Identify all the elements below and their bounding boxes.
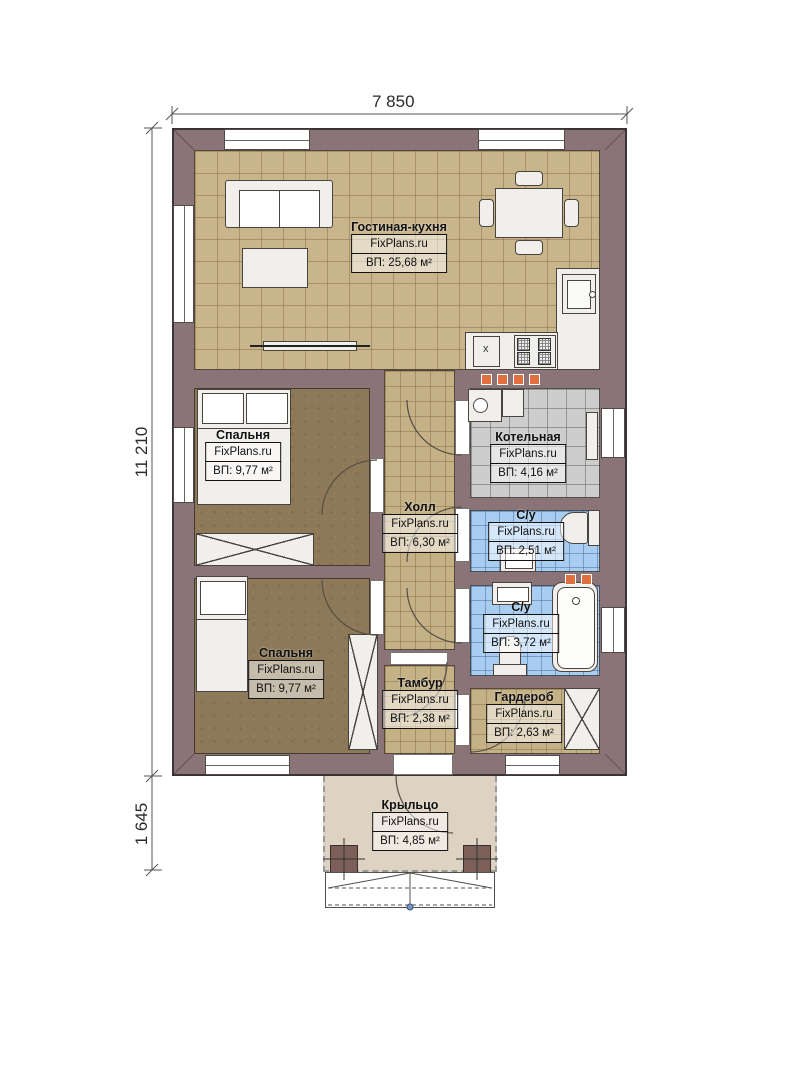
window-top-right — [478, 129, 565, 150]
room-name: Спальня — [205, 428, 281, 443]
room-name: С/у — [483, 600, 559, 615]
boiler-unit — [468, 389, 502, 422]
window-top-left — [224, 129, 310, 150]
room-area: ВП: 2,63 м² — [486, 723, 562, 743]
room-name: Холл — [382, 500, 458, 515]
room-area: ВП: 3,72 м² — [483, 633, 559, 653]
stove-burner-2 — [538, 338, 551, 351]
dining-chair-right — [564, 199, 579, 227]
room-label-bedroom1: Спальня FixPlans.ru ВП: 9,77 м² — [205, 428, 281, 481]
toilet-wc2-tank — [493, 664, 527, 676]
watermark: FixPlans.ru — [483, 614, 559, 634]
dining-chair-bottom — [515, 240, 543, 255]
porch-steps — [325, 872, 495, 908]
vent-kitchen-3 — [513, 374, 524, 385]
room-label-wardrobe: Гардероб FixPlans.ru ВП: 2,63 м² — [486, 690, 562, 743]
vent-kitchen-4 — [529, 374, 540, 385]
bathtub-drain — [572, 597, 580, 605]
vent-wc-2 — [581, 574, 592, 585]
kitchen-sink — [562, 274, 596, 314]
coffee-table — [242, 248, 308, 288]
boiler-counter — [502, 389, 524, 417]
room-area: ВП: 4,16 м² — [490, 463, 566, 483]
porch-column-left — [330, 845, 358, 873]
dimension-porch: 1 645 — [132, 794, 152, 854]
door-opening-bedroom2 — [370, 580, 384, 635]
bathtub — [552, 582, 598, 672]
door-opening-tambur — [390, 652, 448, 665]
room-label-living: Гостиная-кухня FixPlans.ru ВП: 25,68 м² — [351, 220, 447, 273]
room-label-porch: Крыльцо FixPlans.ru ВП: 4,85 м² — [372, 798, 448, 851]
sofa-cushion-right — [279, 190, 320, 228]
kitchen-appliance-label: x — [483, 343, 489, 355]
room-area: ВП: 6,30 м² — [382, 533, 458, 553]
room-name: Котельная — [490, 430, 566, 445]
porch-column-right — [463, 845, 491, 873]
wardrobe-cabinet — [564, 688, 600, 750]
bed2-blanket-line — [197, 619, 249, 620]
kitchen-sink-basin — [567, 280, 591, 309]
entrance-door-opening — [393, 754, 453, 775]
window-right-wc2 — [601, 607, 625, 653]
room-name: Тамбур — [382, 676, 458, 691]
door-opening-wc2 — [455, 588, 470, 643]
room-name: Крыльцо — [372, 798, 448, 813]
vent-wc-1 — [565, 574, 576, 585]
window-left-living — [173, 205, 194, 323]
room-name: Спальня — [248, 646, 324, 661]
stove-burner-1 — [517, 338, 530, 351]
stove-burner-4 — [538, 352, 551, 365]
bed2-pillow — [200, 581, 246, 615]
bed-pillow-right — [246, 393, 288, 424]
tv-unit — [263, 341, 357, 351]
watermark: FixPlans.ru — [382, 514, 458, 534]
room-label-hall: Холл FixPlans.ru ВП: 6,30 м² — [382, 500, 458, 553]
room-label-wc1: С/у FixPlans.ru ВП: 2,51 м² — [488, 508, 564, 561]
sofa-cushion-left — [239, 190, 280, 228]
dimension-height: 11 210 — [132, 422, 152, 482]
toilet-wc1-tank — [588, 510, 600, 546]
room-area: ВП: 4,85 м² — [372, 831, 448, 851]
room-area: ВП: 9,77 м² — [205, 461, 281, 481]
watermark: FixPlans.ru — [351, 234, 447, 254]
room-name: Гостиная-кухня — [351, 220, 447, 235]
bed-pillow-left — [202, 393, 244, 424]
boiler-dial — [473, 398, 488, 413]
watermark: FixPlans.ru — [248, 660, 324, 680]
watermark: FixPlans.ru — [486, 704, 562, 724]
wardrobe-bedroom2 — [348, 634, 378, 750]
toilet-wc1-bowl — [560, 512, 588, 544]
watermark: FixPlans.ru — [490, 444, 566, 464]
watermark: FixPlans.ru — [488, 522, 564, 542]
watermark: FixPlans.ru — [382, 690, 458, 710]
room-name: С/у — [488, 508, 564, 523]
dining-table — [495, 188, 563, 238]
watermark: FixPlans.ru — [372, 812, 448, 832]
sofa — [225, 180, 333, 228]
dining-chair-left — [479, 199, 494, 227]
room-area: ВП: 2,51 м² — [488, 541, 564, 561]
dimension-width: 7 850 — [372, 92, 415, 112]
window-bottom-bedroom2 — [205, 755, 290, 775]
vent-kitchen-2 — [497, 374, 508, 385]
floor-plan-canvas: x — [0, 0, 792, 1080]
watermark: FixPlans.ru — [205, 442, 281, 462]
room-area: ВП: 9,77 м² — [248, 679, 324, 699]
wardrobe-bedroom1 — [196, 533, 314, 566]
vent-kitchen-1 — [481, 374, 492, 385]
window-right-boiler — [601, 408, 625, 458]
dining-chair-top — [515, 171, 543, 186]
room-area: ВП: 2,38 м² — [382, 709, 458, 729]
room-label-boiler: Котельная FixPlans.ru ВП: 4,16 м² — [490, 430, 566, 483]
window-bottom-wardrobe — [505, 755, 560, 775]
bed-single — [196, 576, 248, 692]
room-area: ВП: 25,68 м² — [351, 253, 447, 273]
boiler-radiator — [586, 412, 598, 460]
stove-burner-3 — [517, 352, 530, 365]
room-name: Гардероб — [486, 690, 562, 705]
room-label-tambur: Тамбур FixPlans.ru ВП: 2,38 м² — [382, 676, 458, 729]
room-label-bedroom2: Спальня FixPlans.ru ВП: 9,77 м² — [248, 646, 324, 699]
window-left-bedroom1 — [173, 427, 194, 503]
kitchen-sink-drain — [589, 291, 596, 298]
room-label-wc2: С/у FixPlans.ru ВП: 3,72 м² — [483, 600, 559, 653]
